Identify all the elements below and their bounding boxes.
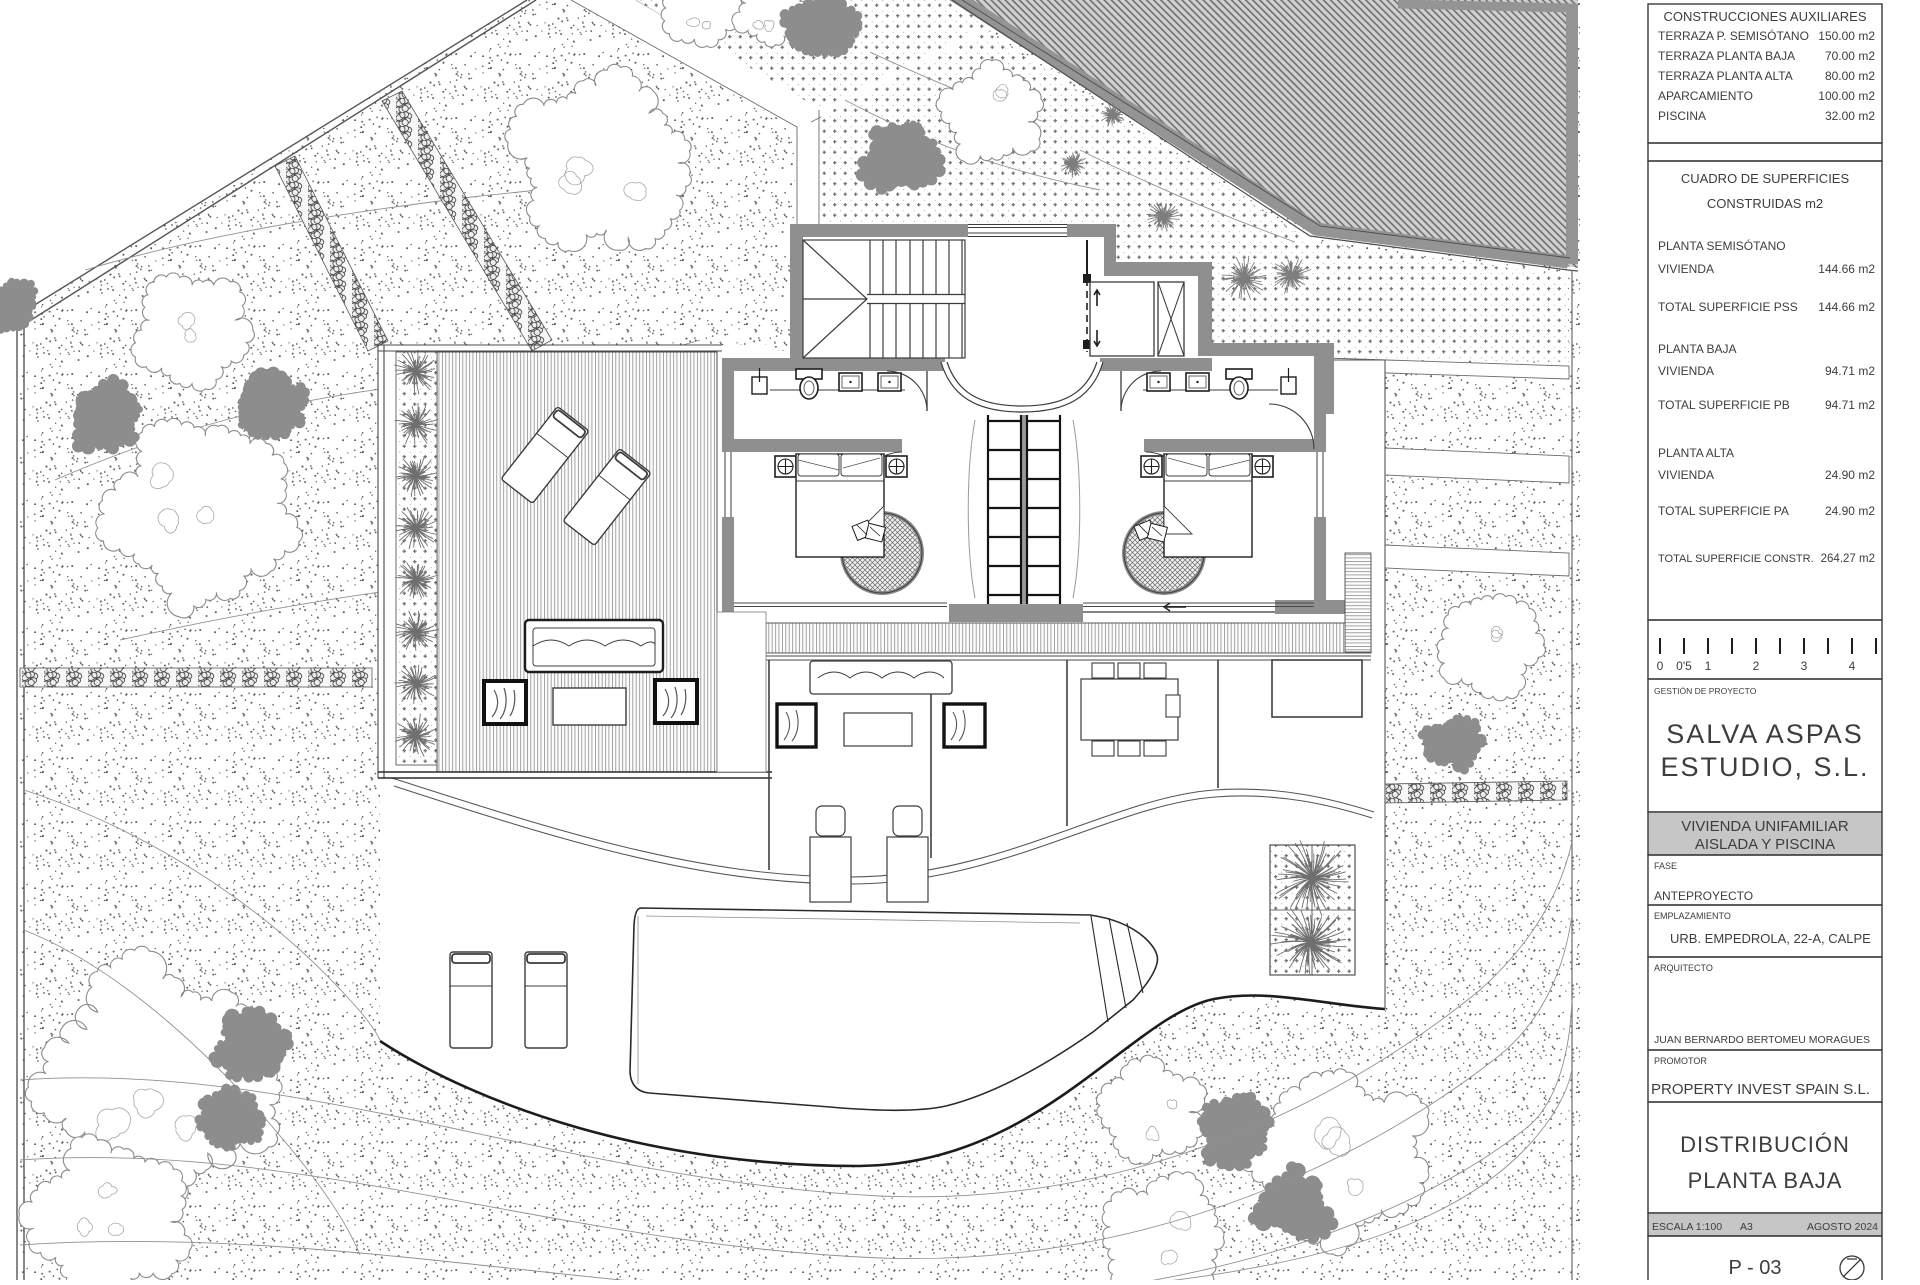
svg-text:ESTUDIO, S.L.: ESTUDIO, S.L. — [1660, 752, 1869, 782]
svg-text:TOTAL SUPERFICIE CONSTR.: TOTAL SUPERFICIE CONSTR. — [1658, 553, 1814, 565]
svg-text:PLANTA ALTA: PLANTA ALTA — [1658, 446, 1734, 460]
svg-text:24.90 m2: 24.90 m2 — [1825, 504, 1875, 518]
svg-text:DISTRIBUCIÓN: DISTRIBUCIÓN — [1680, 1132, 1850, 1157]
svg-text:VIVIENDA: VIVIENDA — [1658, 262, 1714, 276]
svg-text:AGOSTO 2024: AGOSTO 2024 — [1807, 1221, 1878, 1233]
svg-text:CUADRO DE SUPERFICIES: CUADRO DE SUPERFICIES — [1681, 171, 1850, 186]
svg-text:PLANTA BAJA: PLANTA BAJA — [1688, 1168, 1843, 1193]
svg-text:80.00 m2: 80.00 m2 — [1825, 69, 1875, 83]
svg-text:144.66 m2: 144.66 m2 — [1818, 300, 1875, 314]
svg-text:CONSTRUCCIONES AUXILIARES: CONSTRUCCIONES AUXILIARES — [1664, 9, 1867, 24]
svg-text:150.00 m2: 150.00 m2 — [1818, 29, 1875, 43]
svg-text:ESCALA 1:100: ESCALA 1:100 — [1652, 1221, 1722, 1233]
svg-text:A3: A3 — [1740, 1221, 1753, 1233]
svg-text:GESTIÓN DE PROYECTO: GESTIÓN DE PROYECTO — [1654, 686, 1757, 696]
svg-text:0: 0 — [1657, 659, 1664, 673]
svg-text:AISLADA Y PISCINA: AISLADA Y PISCINA — [1695, 836, 1835, 853]
svg-text:EMPLAZAMIENTO: EMPLAZAMIENTO — [1654, 911, 1731, 921]
svg-text:3: 3 — [1801, 659, 1808, 673]
svg-text:TOTAL SUPERFICIE PSS: TOTAL SUPERFICIE PSS — [1658, 300, 1798, 314]
svg-text:PLANTA SEMISÓTANO: PLANTA SEMISÓTANO — [1658, 238, 1786, 253]
svg-text:SALVA ASPAS: SALVA ASPAS — [1666, 719, 1864, 749]
svg-text:VIVIENDA UNIFAMILIAR: VIVIENDA UNIFAMILIAR — [1681, 818, 1849, 835]
svg-text:PLANTA BAJA: PLANTA BAJA — [1658, 342, 1736, 356]
svg-text:32.00 m2: 32.00 m2 — [1825, 109, 1875, 123]
svg-text:2: 2 — [1753, 659, 1760, 673]
svg-text:P - 03: P - 03 — [1729, 1257, 1782, 1279]
svg-text:URB. EMPEDROLA, 22-A, CALPE: URB. EMPEDROLA, 22-A, CALPE — [1670, 931, 1871, 946]
svg-text:TERRAZA PLANTA ALTA: TERRAZA PLANTA ALTA — [1658, 69, 1793, 83]
svg-text:94.71 m2: 94.71 m2 — [1825, 398, 1875, 412]
svg-text:TOTAL SUPERFICIE PA: TOTAL SUPERFICIE PA — [1658, 504, 1789, 518]
svg-text:TERRAZA P. SEMISÓTANO: TERRAZA P. SEMISÓTANO — [1658, 28, 1809, 43]
svg-text:0'5: 0'5 — [1676, 659, 1692, 673]
svg-text:ARQUITECTO: ARQUITECTO — [1654, 963, 1713, 973]
svg-text:PROMOTOR: PROMOTOR — [1654, 1056, 1707, 1066]
svg-text:94.71 m2: 94.71 m2 — [1825, 364, 1875, 378]
svg-text:ANTEPROYECTO: ANTEPROYECTO — [1654, 889, 1753, 903]
svg-text:APARCAMIENTO: APARCAMIENTO — [1658, 89, 1753, 103]
svg-text:100.00 m2: 100.00 m2 — [1818, 89, 1875, 103]
svg-text:TOTAL SUPERFICIE PB: TOTAL SUPERFICIE PB — [1658, 398, 1790, 412]
svg-text:1: 1 — [1705, 659, 1712, 673]
svg-text:VIVIENDA: VIVIENDA — [1658, 468, 1714, 482]
svg-text:TERRAZA PLANTA BAJA: TERRAZA PLANTA BAJA — [1658, 49, 1795, 63]
svg-text:FASE: FASE — [1654, 861, 1677, 871]
svg-text:144.66 m2: 144.66 m2 — [1818, 262, 1875, 276]
svg-text:CONSTRUIDAS m2: CONSTRUIDAS m2 — [1707, 196, 1823, 211]
svg-text:4: 4 — [1849, 659, 1856, 673]
svg-text:PROPERTY INVEST SPAIN S.L.: PROPERTY INVEST SPAIN S.L. — [1651, 1081, 1870, 1098]
svg-text:PISCINA: PISCINA — [1658, 109, 1706, 123]
svg-text:VIVIENDA: VIVIENDA — [1658, 364, 1714, 378]
svg-text:24.90 m2: 24.90 m2 — [1825, 468, 1875, 482]
svg-text:70.00 m2: 70.00 m2 — [1825, 49, 1875, 63]
svg-text:JUAN BERNARDO BERTOMEU MORAGUE: JUAN BERNARDO BERTOMEU MORAGUES — [1654, 1034, 1870, 1046]
svg-text:264.27 m2: 264.27 m2 — [1821, 553, 1875, 565]
